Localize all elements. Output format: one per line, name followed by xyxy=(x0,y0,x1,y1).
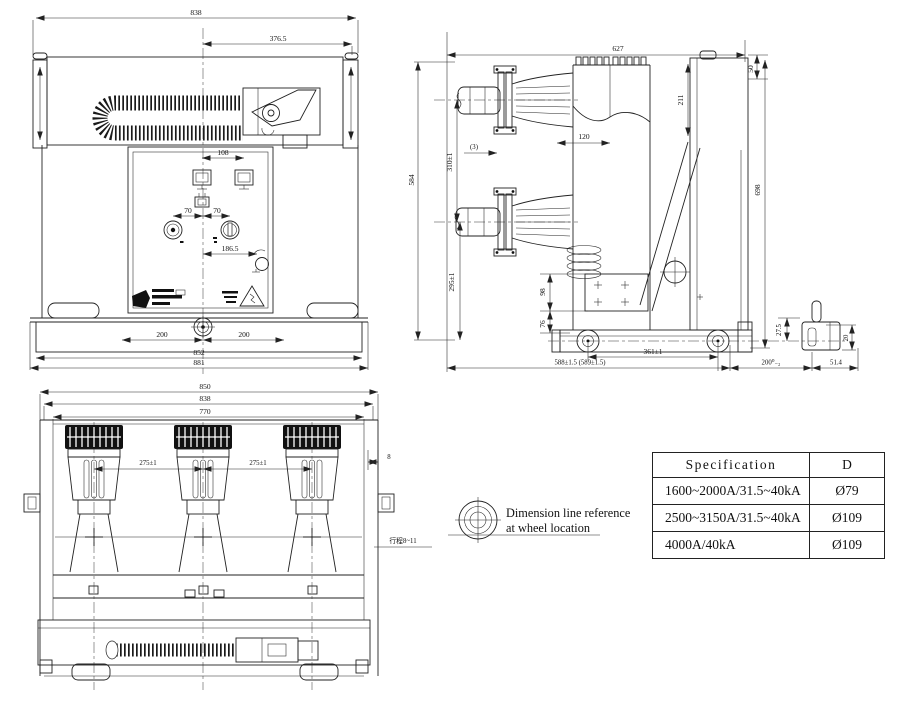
dim-side-211: 211 xyxy=(676,94,685,105)
dim-base-right: 200 xyxy=(238,330,250,339)
dim-side-top-depth: 627 xyxy=(612,44,624,53)
dim-side-ext-200: 200⁰₋₂ xyxy=(762,360,781,367)
dim-side-wheel-20: 20 xyxy=(843,334,850,341)
wheel-bracket-detail xyxy=(802,301,840,350)
spec-table-row: 1600~2000A/31.5~40kA Ø79 xyxy=(653,478,885,505)
dim-plan-frame: 838 xyxy=(199,394,211,403)
nameplate-label xyxy=(132,289,185,308)
drawing-canvas: 838 376.5 xyxy=(0,0,897,713)
spec-cell-rating: 4000A/40kA xyxy=(653,532,810,559)
upper-pole xyxy=(434,66,578,134)
plate-cross-marks xyxy=(594,281,629,306)
warning-label xyxy=(222,286,264,306)
spec-header-d: D xyxy=(810,453,885,478)
dim-side-98: 98 xyxy=(538,288,547,296)
terminal-teeth xyxy=(576,57,646,65)
pole-housing xyxy=(567,57,650,330)
lower-pole xyxy=(434,188,578,256)
operating-lever xyxy=(243,88,320,148)
front-top-frame xyxy=(33,53,358,148)
dim-side-rear-height: 698 xyxy=(753,184,762,196)
side-view: 627 50 584 310±1 (3) 120 211 698 xyxy=(407,32,858,372)
dim-side-overall-depth: 588±1.5 (589±1.5) xyxy=(554,360,605,367)
plan-travel-note: 行程8~11 xyxy=(389,536,416,545)
dim-base-width: 852 xyxy=(193,348,205,357)
dim-side-top-step: 50 xyxy=(746,65,755,73)
spec-table-header-row: Specification D xyxy=(653,453,885,478)
plan-pole-2 xyxy=(174,422,232,690)
front-view: 838 376.5 xyxy=(30,8,368,374)
dim-front-total-width: 838 xyxy=(190,8,202,17)
dim-window-pitch: 108 xyxy=(217,148,229,157)
operation-knobs: 70 70 xyxy=(164,206,239,243)
dim-side-height: 584 xyxy=(407,174,416,186)
rear-frame xyxy=(640,51,748,330)
side-truck xyxy=(548,301,848,352)
flexible-conduit xyxy=(100,103,243,133)
spec-table-row: 2500~3150A/31.5~40kA Ø109 xyxy=(653,505,885,532)
dim-side-27-5: 27.5 xyxy=(776,323,783,335)
spring xyxy=(567,246,601,279)
front-body: 108 70 70 186.5 xyxy=(42,145,358,318)
dim-side-wheel-pitch: 361±1 xyxy=(643,347,662,356)
lock-circle xyxy=(256,258,269,271)
dim-plan-8: 8 xyxy=(387,454,391,461)
indicator-windows: 108 xyxy=(193,148,253,189)
spec-cell-rating: 2500~3150A/31.5~40kA xyxy=(653,505,810,532)
plan-pole-3 xyxy=(283,422,341,690)
dim-knob-left: 70 xyxy=(184,206,192,215)
spec-cell-rating: 1600~2000A/31.5~40kA xyxy=(653,478,810,505)
front-dimensions: 838 376.5 xyxy=(33,8,358,374)
plan-chassis xyxy=(38,575,370,680)
dim-base-left: 200 xyxy=(156,330,168,339)
spec-cell-diameter: Ø109 xyxy=(810,532,885,559)
dim-knob-right: 70 xyxy=(213,206,221,215)
plan-view: 850 838 770 xyxy=(24,382,432,690)
dim-side-120: 120 xyxy=(578,132,590,141)
center-mount xyxy=(191,316,215,338)
dim-side-ext-51-4: 51.4 xyxy=(830,360,842,367)
dim-plan-inner: 770 xyxy=(199,407,211,416)
dim-side-arm-height: 295±1 xyxy=(447,272,456,291)
dim-panel: 186.5 xyxy=(222,244,239,253)
spec-table-row: 4000A/40kA Ø109 xyxy=(653,532,885,559)
spec-table: Specification D 1600~2000A/31.5~40kA Ø79… xyxy=(652,452,885,559)
front-base: 200 200 852 881 xyxy=(30,316,368,370)
dim-plan-total: 850 xyxy=(199,382,211,391)
spec-header-specification: Specification xyxy=(653,453,810,478)
note-3: (3) xyxy=(470,144,478,151)
dim-front-offset-right: 376.5 xyxy=(270,34,287,43)
drawing-svg: 838 376.5 xyxy=(0,0,897,713)
dim-plan-pitch-1: 275±1 xyxy=(139,460,156,467)
dim-base-total: 881 xyxy=(193,358,205,367)
plan-outline xyxy=(40,420,378,676)
wheel-note-line2: at wheel location xyxy=(506,521,590,535)
spec-cell-diameter: Ø109 xyxy=(810,505,885,532)
dim-side-76: 76 xyxy=(538,320,547,328)
dim-plan-pitch-2: 275±1 xyxy=(249,460,266,467)
wheel-note: Dimension line reference at wheel locati… xyxy=(448,497,631,543)
dim-side-pole-pitch: 310±1 xyxy=(445,152,454,171)
spec-cell-diameter: Ø79 xyxy=(810,478,885,505)
wheel-note-line1: Dimension line reference xyxy=(506,506,631,520)
